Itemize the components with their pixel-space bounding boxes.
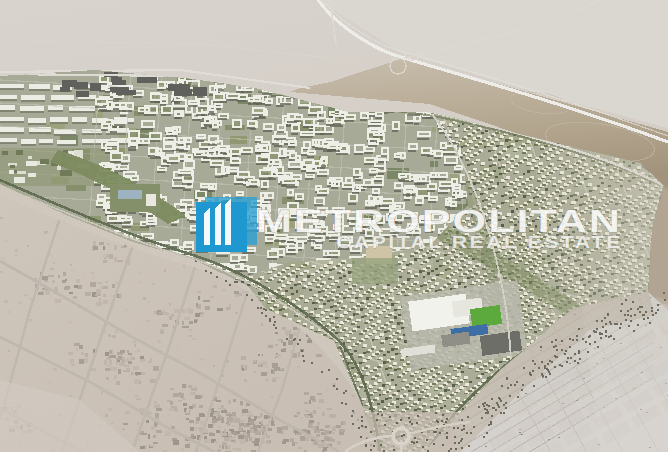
svg-text:CAPITAL REAL ESTATE: CAPITAL REAL ESTATE	[336, 232, 623, 252]
